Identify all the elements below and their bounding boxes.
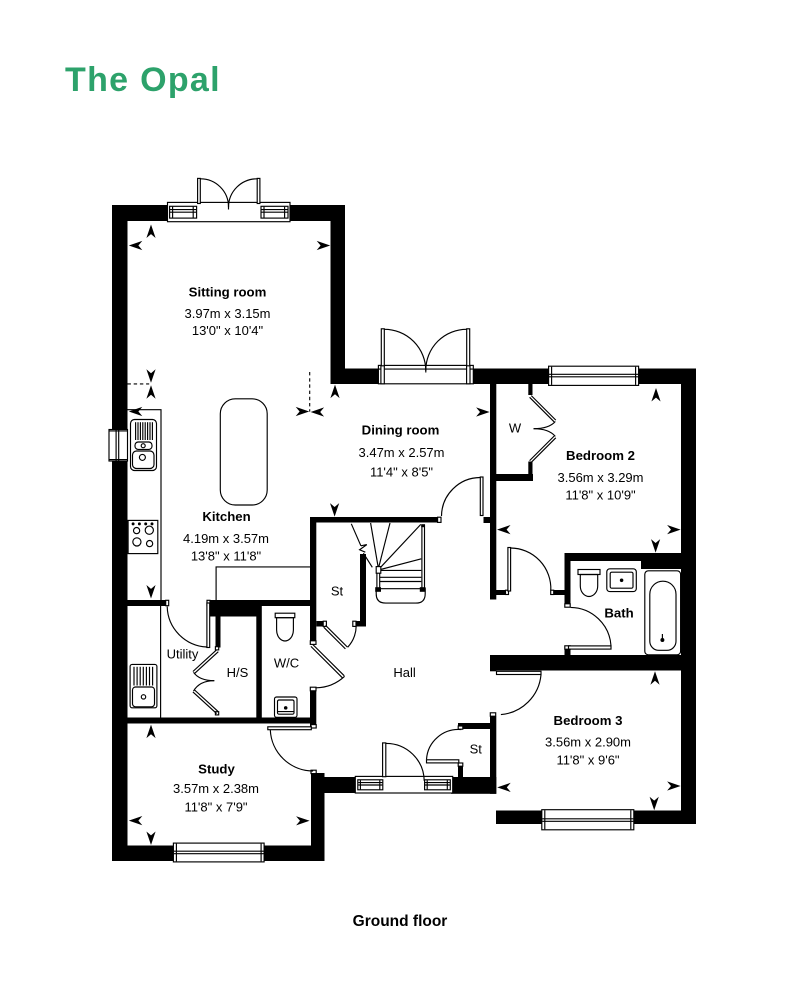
svg-text:Hall: Hall bbox=[393, 665, 416, 680]
svg-text:11'8" x 10'9": 11'8" x 10'9" bbox=[565, 488, 636, 503]
svg-text:11'8" x 9'6": 11'8" x 9'6" bbox=[556, 753, 619, 768]
svg-text:H/S: H/S bbox=[227, 665, 249, 680]
svg-text:3.56m x 3.29m: 3.56m x 3.29m bbox=[558, 470, 644, 485]
svg-text:St: St bbox=[470, 742, 483, 757]
svg-text:The Opal: The Opal bbox=[65, 61, 221, 99]
svg-text:3.57m x 2.38m: 3.57m x 2.38m bbox=[173, 781, 259, 796]
svg-text:11'4" x 8'5": 11'4" x 8'5" bbox=[370, 465, 433, 480]
svg-text:Kitchen: Kitchen bbox=[202, 509, 250, 524]
svg-text:Dining room: Dining room bbox=[362, 423, 440, 438]
svg-text:Bath: Bath bbox=[604, 606, 633, 621]
svg-text:Sitting room: Sitting room bbox=[189, 285, 267, 300]
svg-text:13'0" x 10'4": 13'0" x 10'4" bbox=[192, 323, 264, 338]
svg-text:3.47m x 2.57m: 3.47m x 2.57m bbox=[359, 445, 445, 460]
svg-text:13'8" x 11'8": 13'8" x 11'8" bbox=[191, 549, 262, 564]
svg-text:Ground floor: Ground floor bbox=[353, 913, 448, 930]
svg-text:W/C: W/C bbox=[274, 656, 299, 671]
svg-text:St: St bbox=[331, 584, 344, 599]
svg-text:W: W bbox=[509, 421, 522, 436]
svg-text:Bedroom 3: Bedroom 3 bbox=[554, 713, 623, 728]
svg-text:Bedroom 2: Bedroom 2 bbox=[566, 448, 635, 463]
svg-text:Study: Study bbox=[198, 762, 235, 777]
svg-text:Utility: Utility bbox=[167, 647, 199, 662]
svg-text:3.56m x 2.90m: 3.56m x 2.90m bbox=[545, 735, 631, 750]
svg-text:11'8" x 7'9": 11'8" x 7'9" bbox=[184, 800, 247, 815]
svg-text:4.19m x 3.57m: 4.19m x 3.57m bbox=[183, 531, 269, 546]
svg-text:3.97m x 3.15m: 3.97m x 3.15m bbox=[185, 306, 271, 321]
